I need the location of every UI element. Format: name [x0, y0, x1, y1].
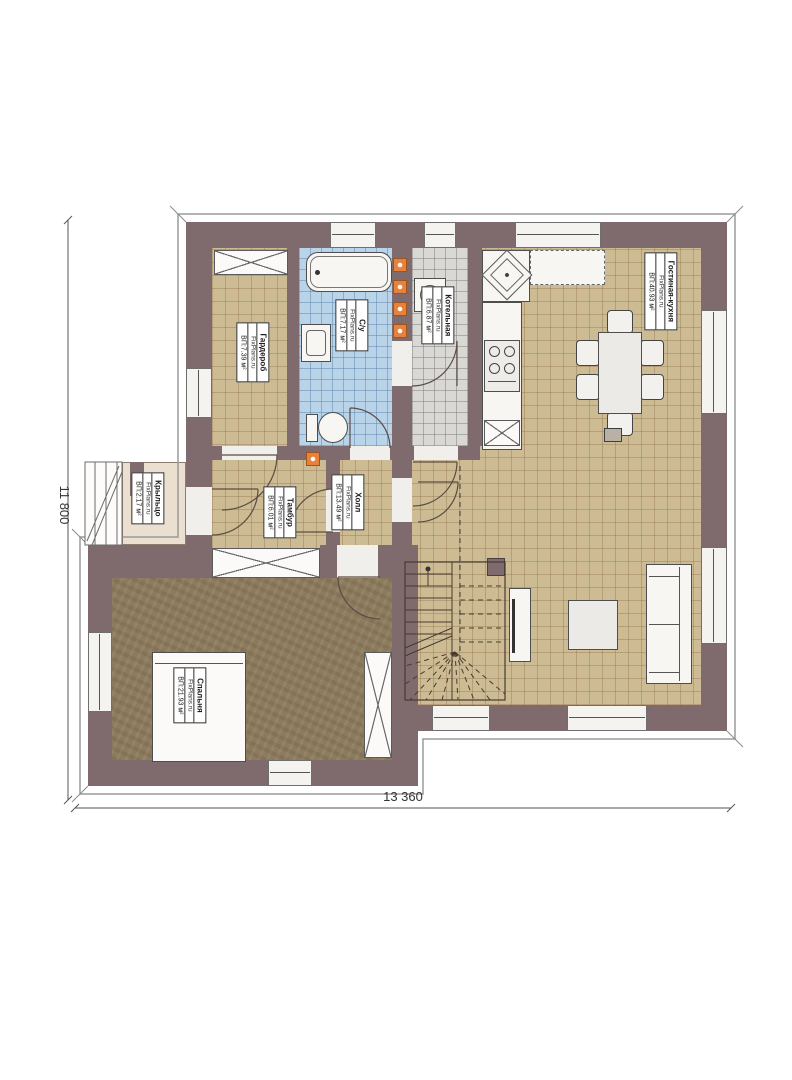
dimension-height-text: 11 800	[57, 486, 72, 525]
floor-vent	[604, 428, 622, 442]
room-brand: FixPlans.ru	[275, 487, 283, 537]
sofa-back-line	[679, 567, 680, 681]
wall-wing-bottom	[88, 760, 418, 786]
tv-stand	[509, 588, 531, 662]
bathtub-tap	[315, 270, 320, 275]
room-name: Гостиная-кухня	[664, 253, 676, 329]
window-top-1	[330, 222, 376, 248]
room-brand: FixPlans.ru	[656, 253, 664, 329]
flue-block	[393, 324, 407, 338]
room-label-living-kitchen: Гостиная-кухня FixPlans.ru ВП:40.93 м²	[645, 252, 678, 330]
room-brand: FixPlans.ru	[433, 287, 441, 343]
wall-wardrobe-bath	[287, 248, 299, 446]
dimension-width-text: 13 360	[383, 789, 423, 804]
opening-bedroom-door	[337, 545, 378, 578]
room-area: ВП:7.17 м²	[337, 300, 347, 350]
window-bedroom-west	[88, 632, 112, 712]
flue-block	[393, 258, 407, 272]
room-area: ВП:13.49 м²	[333, 475, 343, 529]
toilet-bowl	[318, 412, 348, 443]
room-label-porch: Крыльцо FixPlans.ru ВП:2.17 м²	[132, 472, 165, 524]
stove	[484, 340, 520, 392]
bed-foot-line	[155, 663, 243, 664]
kitchen-cabinet	[484, 420, 520, 446]
window-bottom-1	[432, 705, 490, 731]
washbasin-bowl	[306, 330, 326, 356]
tambour-closet	[212, 548, 320, 578]
wall-right	[701, 222, 727, 731]
bathtub	[306, 252, 392, 292]
room-area: ВП:7.39 м²	[238, 323, 248, 381]
dining-chair	[640, 340, 664, 366]
room-area: ВП:6.01 м²	[265, 487, 275, 537]
opening-wardrobe-door	[222, 446, 277, 460]
room-area: ВП:2.17 м²	[133, 473, 143, 523]
room-area: ВП:40.93 м²	[646, 253, 656, 329]
sofa	[646, 564, 692, 684]
porch-steps	[85, 462, 122, 545]
kitchen-counter-dashed	[530, 250, 605, 285]
dining-chair	[640, 374, 664, 400]
room-name: Крыльцо	[151, 473, 163, 523]
wall-top	[186, 222, 727, 248]
window-top-2	[424, 222, 456, 248]
coffee-table	[568, 600, 618, 650]
burner	[504, 363, 515, 374]
window-bedroom-south	[268, 760, 312, 786]
room-label-bedroom: Спальня FixPlans.ru ВП:21.93 м²	[174, 667, 207, 723]
room-brand: FixPlans.ru	[185, 668, 193, 722]
tv-screen	[512, 599, 515, 653]
burner	[489, 363, 500, 374]
bedroom-closet	[364, 652, 392, 758]
room-area: ВП:21.93 м²	[175, 668, 185, 722]
floor-plan: 13 360 11 800 Гардероб FixPlans.ru ВП:7.…	[0, 0, 792, 1080]
room-name: Гардероб	[256, 323, 268, 381]
room-label-boiler: Котельная FixPlans.ru ВП:6.87 м²	[422, 286, 455, 344]
opening-entry-door	[186, 487, 212, 535]
room-label-bathroom: С/у FixPlans.ru ВП:7.17 м²	[336, 299, 369, 351]
wall-boiler-kitchen	[468, 248, 482, 446]
dining-chair	[576, 340, 600, 366]
dining-chair	[576, 374, 600, 400]
window-right-2	[701, 547, 727, 644]
room-name: Спальня	[193, 668, 205, 722]
wardrobe-cabinet	[214, 250, 288, 275]
burner	[489, 346, 500, 357]
sofa-seat-line	[649, 624, 679, 625]
room-brand: FixPlans.ru	[248, 323, 256, 381]
room-brand: FixPlans.ru	[143, 473, 151, 523]
bathtub-inner	[310, 256, 388, 288]
washbasin	[301, 324, 331, 362]
flue-block	[393, 302, 407, 316]
room-brand: FixPlans.ru	[343, 475, 351, 529]
toilet-tank	[306, 414, 318, 442]
flue-block	[393, 280, 407, 294]
sofa-armrest-line	[649, 672, 679, 673]
dining-table	[598, 332, 642, 414]
dining-chair	[607, 310, 633, 334]
room-brand: FixPlans.ru	[347, 300, 355, 350]
room-name: Котельная	[441, 287, 453, 343]
stair-column	[487, 558, 505, 576]
window-top-3	[515, 222, 601, 248]
room-area: ВП:6.87 м²	[423, 287, 433, 343]
window-wardrobe-west	[186, 368, 212, 418]
room-label-tambour: Тамбур FixPlans.ru ВП:6.01 м²	[264, 486, 297, 538]
room-name: С/у	[355, 300, 367, 350]
opening-bath-door	[350, 446, 390, 460]
opening-bath-boiler	[392, 341, 412, 386]
sofa-armrest-line	[649, 576, 679, 577]
room-name: Тамбур	[283, 487, 295, 537]
opening-boiler-south	[414, 446, 458, 460]
room-name: Холл	[351, 475, 363, 529]
room-label-hall: Холл FixPlans.ru ВП:13.49 м²	[332, 474, 365, 530]
flue-block	[306, 452, 320, 466]
burner	[504, 346, 515, 357]
opening-hall-living	[392, 478, 412, 522]
window-bottom-2	[567, 705, 647, 731]
oven-line	[488, 381, 516, 382]
room-label-wardrobe: Гардероб FixPlans.ru ВП:7.39 м²	[237, 322, 270, 382]
window-right-1	[701, 310, 727, 414]
